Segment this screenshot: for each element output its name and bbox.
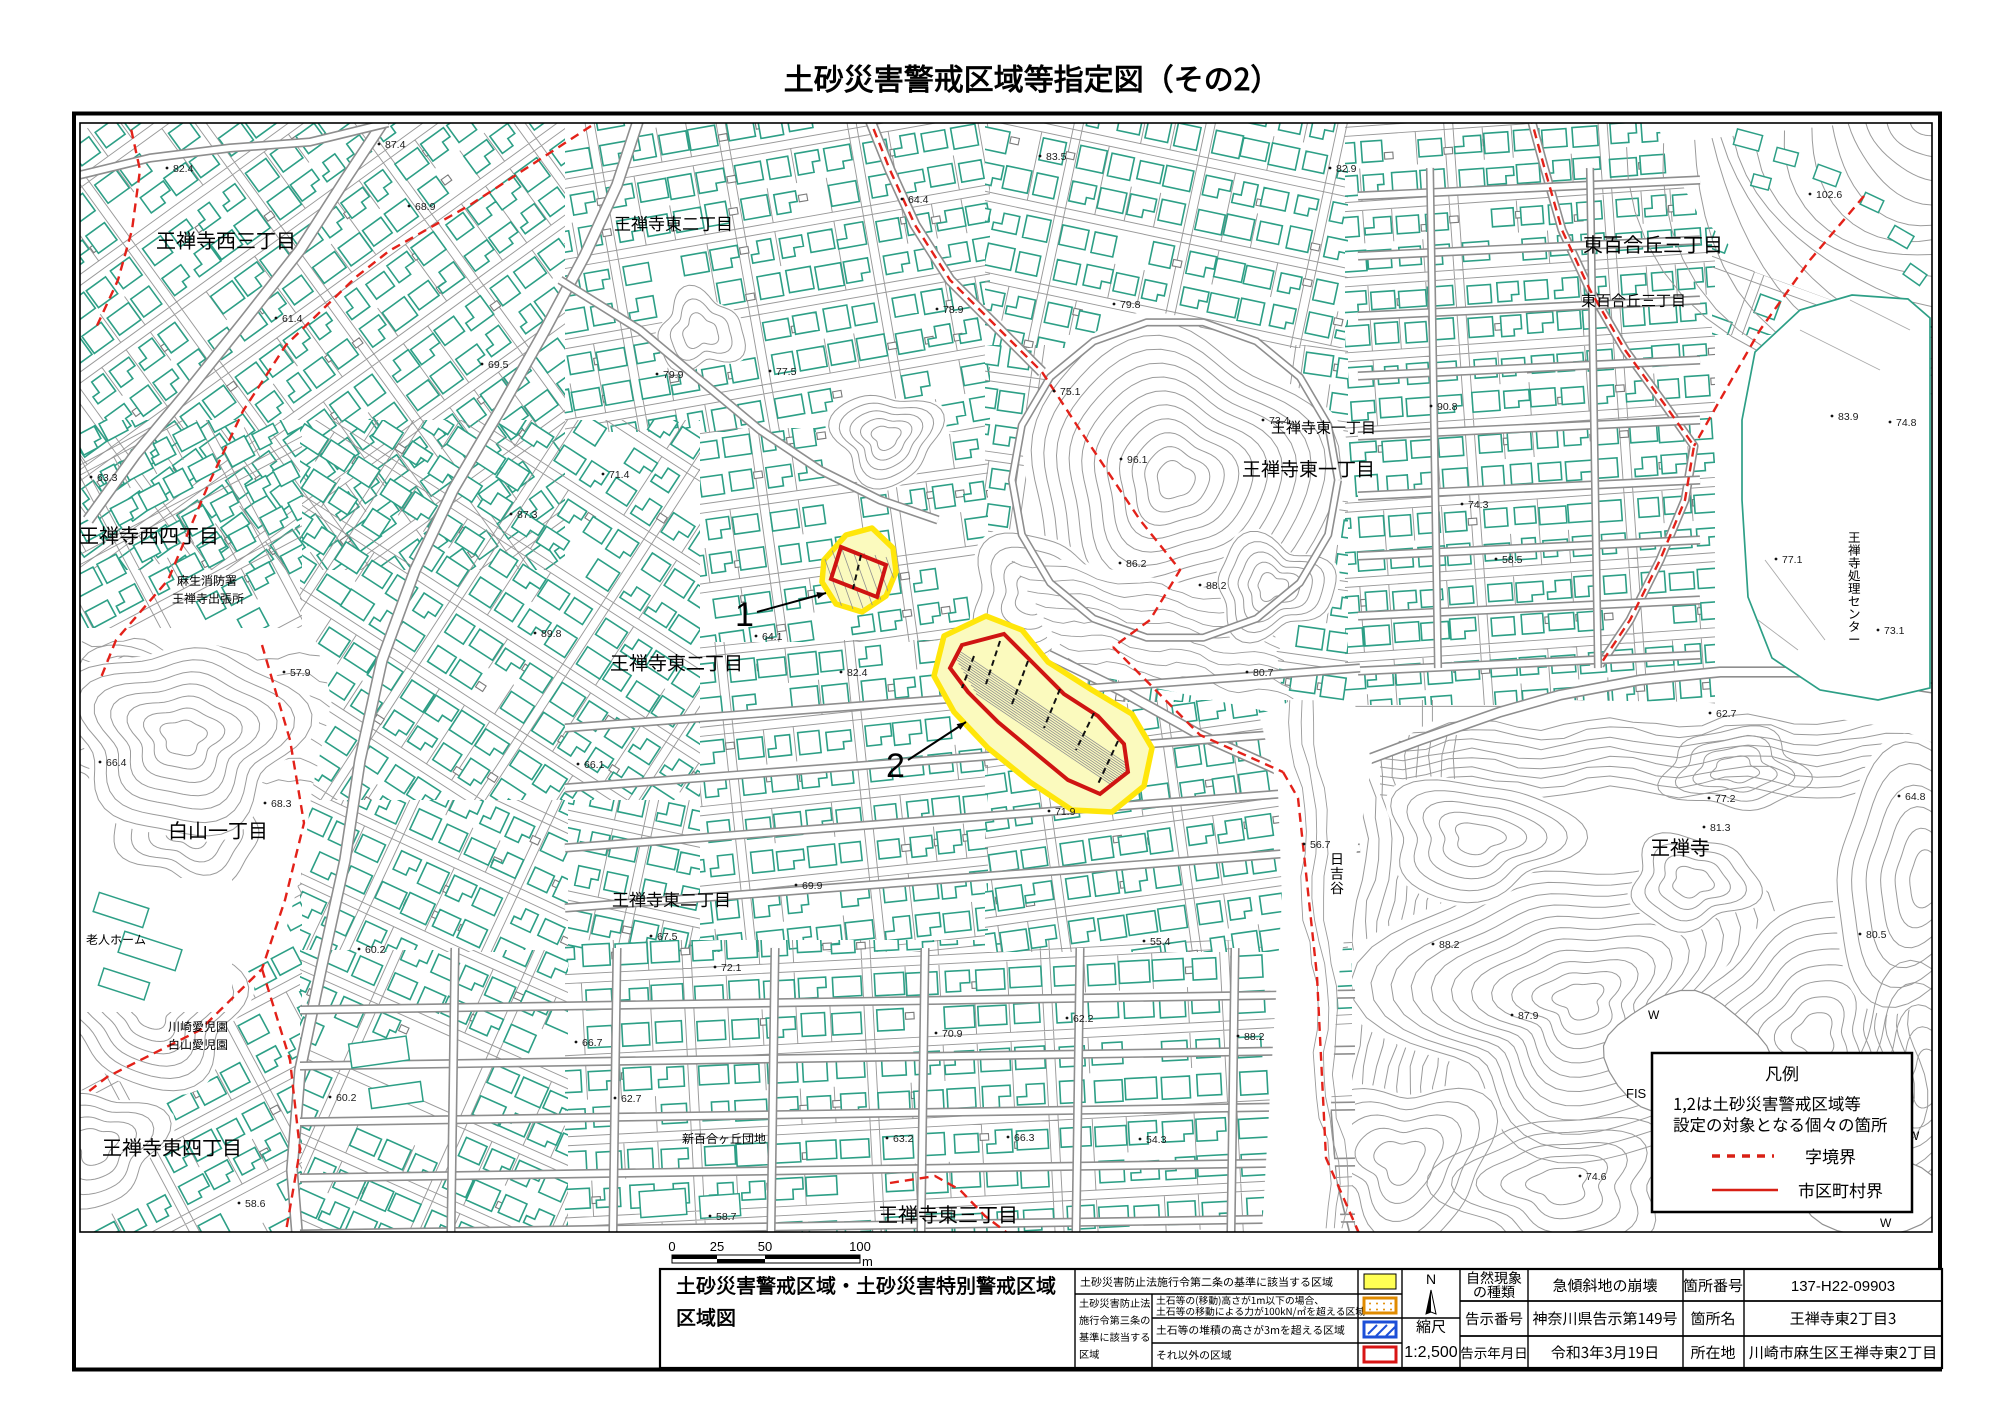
svg-text:2: 2 [886,747,905,785]
svg-text:79.9: 79.9 [663,369,684,381]
svg-text:75.1: 75.1 [1060,386,1081,398]
svg-text:69.9: 69.9 [802,880,823,892]
svg-text:FIS: FIS [1626,1086,1647,1101]
svg-text:1: 1 [735,596,754,634]
svg-text:56.7: 56.7 [1310,839,1331,851]
svg-text:69.5: 69.5 [488,359,509,371]
svg-text:72.1: 72.1 [721,962,742,974]
svg-text:W: W [1880,1216,1892,1230]
svg-text:63.3: 63.3 [97,472,118,484]
svg-text:0: 0 [668,1239,675,1254]
svg-text:68.3: 68.3 [271,798,292,810]
svg-text:m: m [862,1254,873,1269]
svg-text:80.7: 80.7 [1253,667,1274,679]
svg-text:25: 25 [710,1239,724,1254]
svg-text:87.9: 87.9 [1518,1010,1539,1022]
svg-text:62.7: 62.7 [1716,708,1737,720]
svg-text:64.4: 64.4 [908,194,929,206]
svg-text:137-H22-09903: 137-H22-09903 [1791,1278,1895,1295]
svg-text:88.2: 88.2 [1439,939,1460,951]
svg-text:71.9: 71.9 [1055,806,1076,818]
svg-text:64.1: 64.1 [762,631,783,643]
svg-text:W: W [1648,1008,1660,1022]
svg-text:62.2: 62.2 [1073,1013,1094,1025]
svg-text:68.9: 68.9 [415,201,436,213]
svg-text:55.4: 55.4 [1150,936,1171,948]
svg-text:82.9: 82.9 [1336,163,1357,175]
svg-text:82.4: 82.4 [847,667,868,679]
svg-text:66.7: 66.7 [582,1037,603,1049]
svg-text:66.4: 66.4 [106,757,127,769]
svg-text:60.2: 60.2 [336,1092,357,1104]
svg-text:66.3: 66.3 [1014,1132,1035,1144]
svg-text:61.4: 61.4 [282,313,303,325]
svg-text:74.8: 74.8 [1896,417,1917,429]
svg-text:66.1: 66.1 [584,759,605,771]
svg-text:70.9: 70.9 [942,1028,963,1040]
svg-text:88.2: 88.2 [1244,1031,1265,1043]
svg-text:87.3: 87.3 [517,509,538,521]
svg-text:58.7: 58.7 [716,1211,737,1223]
svg-text:1:2,500: 1:2,500 [1404,1344,1457,1361]
svg-text:63.2: 63.2 [893,1133,914,1145]
svg-text:62.7: 62.7 [621,1093,642,1105]
svg-text:58.5: 58.5 [1502,554,1523,566]
svg-text:74.3: 74.3 [1468,499,1489,511]
svg-text:77.1: 77.1 [1782,554,1803,566]
svg-text:77.5: 77.5 [776,366,797,378]
svg-text:77.2: 77.2 [1715,793,1736,805]
svg-text:83.9: 83.9 [1838,411,1859,423]
svg-text:60.2: 60.2 [365,944,386,956]
svg-text:57.9: 57.9 [290,667,311,679]
svg-text:78.9: 78.9 [943,304,964,316]
svg-text:58.6: 58.6 [245,1198,266,1210]
svg-text:73.4: 73.4 [1269,415,1290,427]
svg-text:102.6: 102.6 [1816,189,1842,201]
svg-text:100: 100 [849,1239,871,1254]
svg-text:50: 50 [758,1239,772,1254]
svg-text:82.4: 82.4 [173,163,194,175]
svg-text:79.8: 79.8 [1120,299,1141,311]
svg-text:54.3: 54.3 [1146,1134,1167,1146]
svg-text:89.8: 89.8 [541,628,562,640]
svg-text:80.5: 80.5 [1866,929,1887,941]
svg-text:81.3: 81.3 [1710,822,1731,834]
svg-text:74.6: 74.6 [1586,1171,1607,1183]
svg-text:71.4: 71.4 [609,469,630,481]
svg-text:96.1: 96.1 [1127,454,1148,466]
svg-text:83.5: 83.5 [1046,151,1067,163]
svg-text:86.2: 86.2 [1126,558,1147,570]
svg-text:N: N [1426,1271,1436,1287]
svg-text:73.1: 73.1 [1884,625,1905,637]
svg-text:90.8: 90.8 [1437,401,1458,413]
svg-text:87.4: 87.4 [385,139,406,151]
svg-text:88.2: 88.2 [1206,580,1227,592]
svg-text:64.8: 64.8 [1905,791,1926,803]
svg-text:67.5: 67.5 [657,931,678,943]
